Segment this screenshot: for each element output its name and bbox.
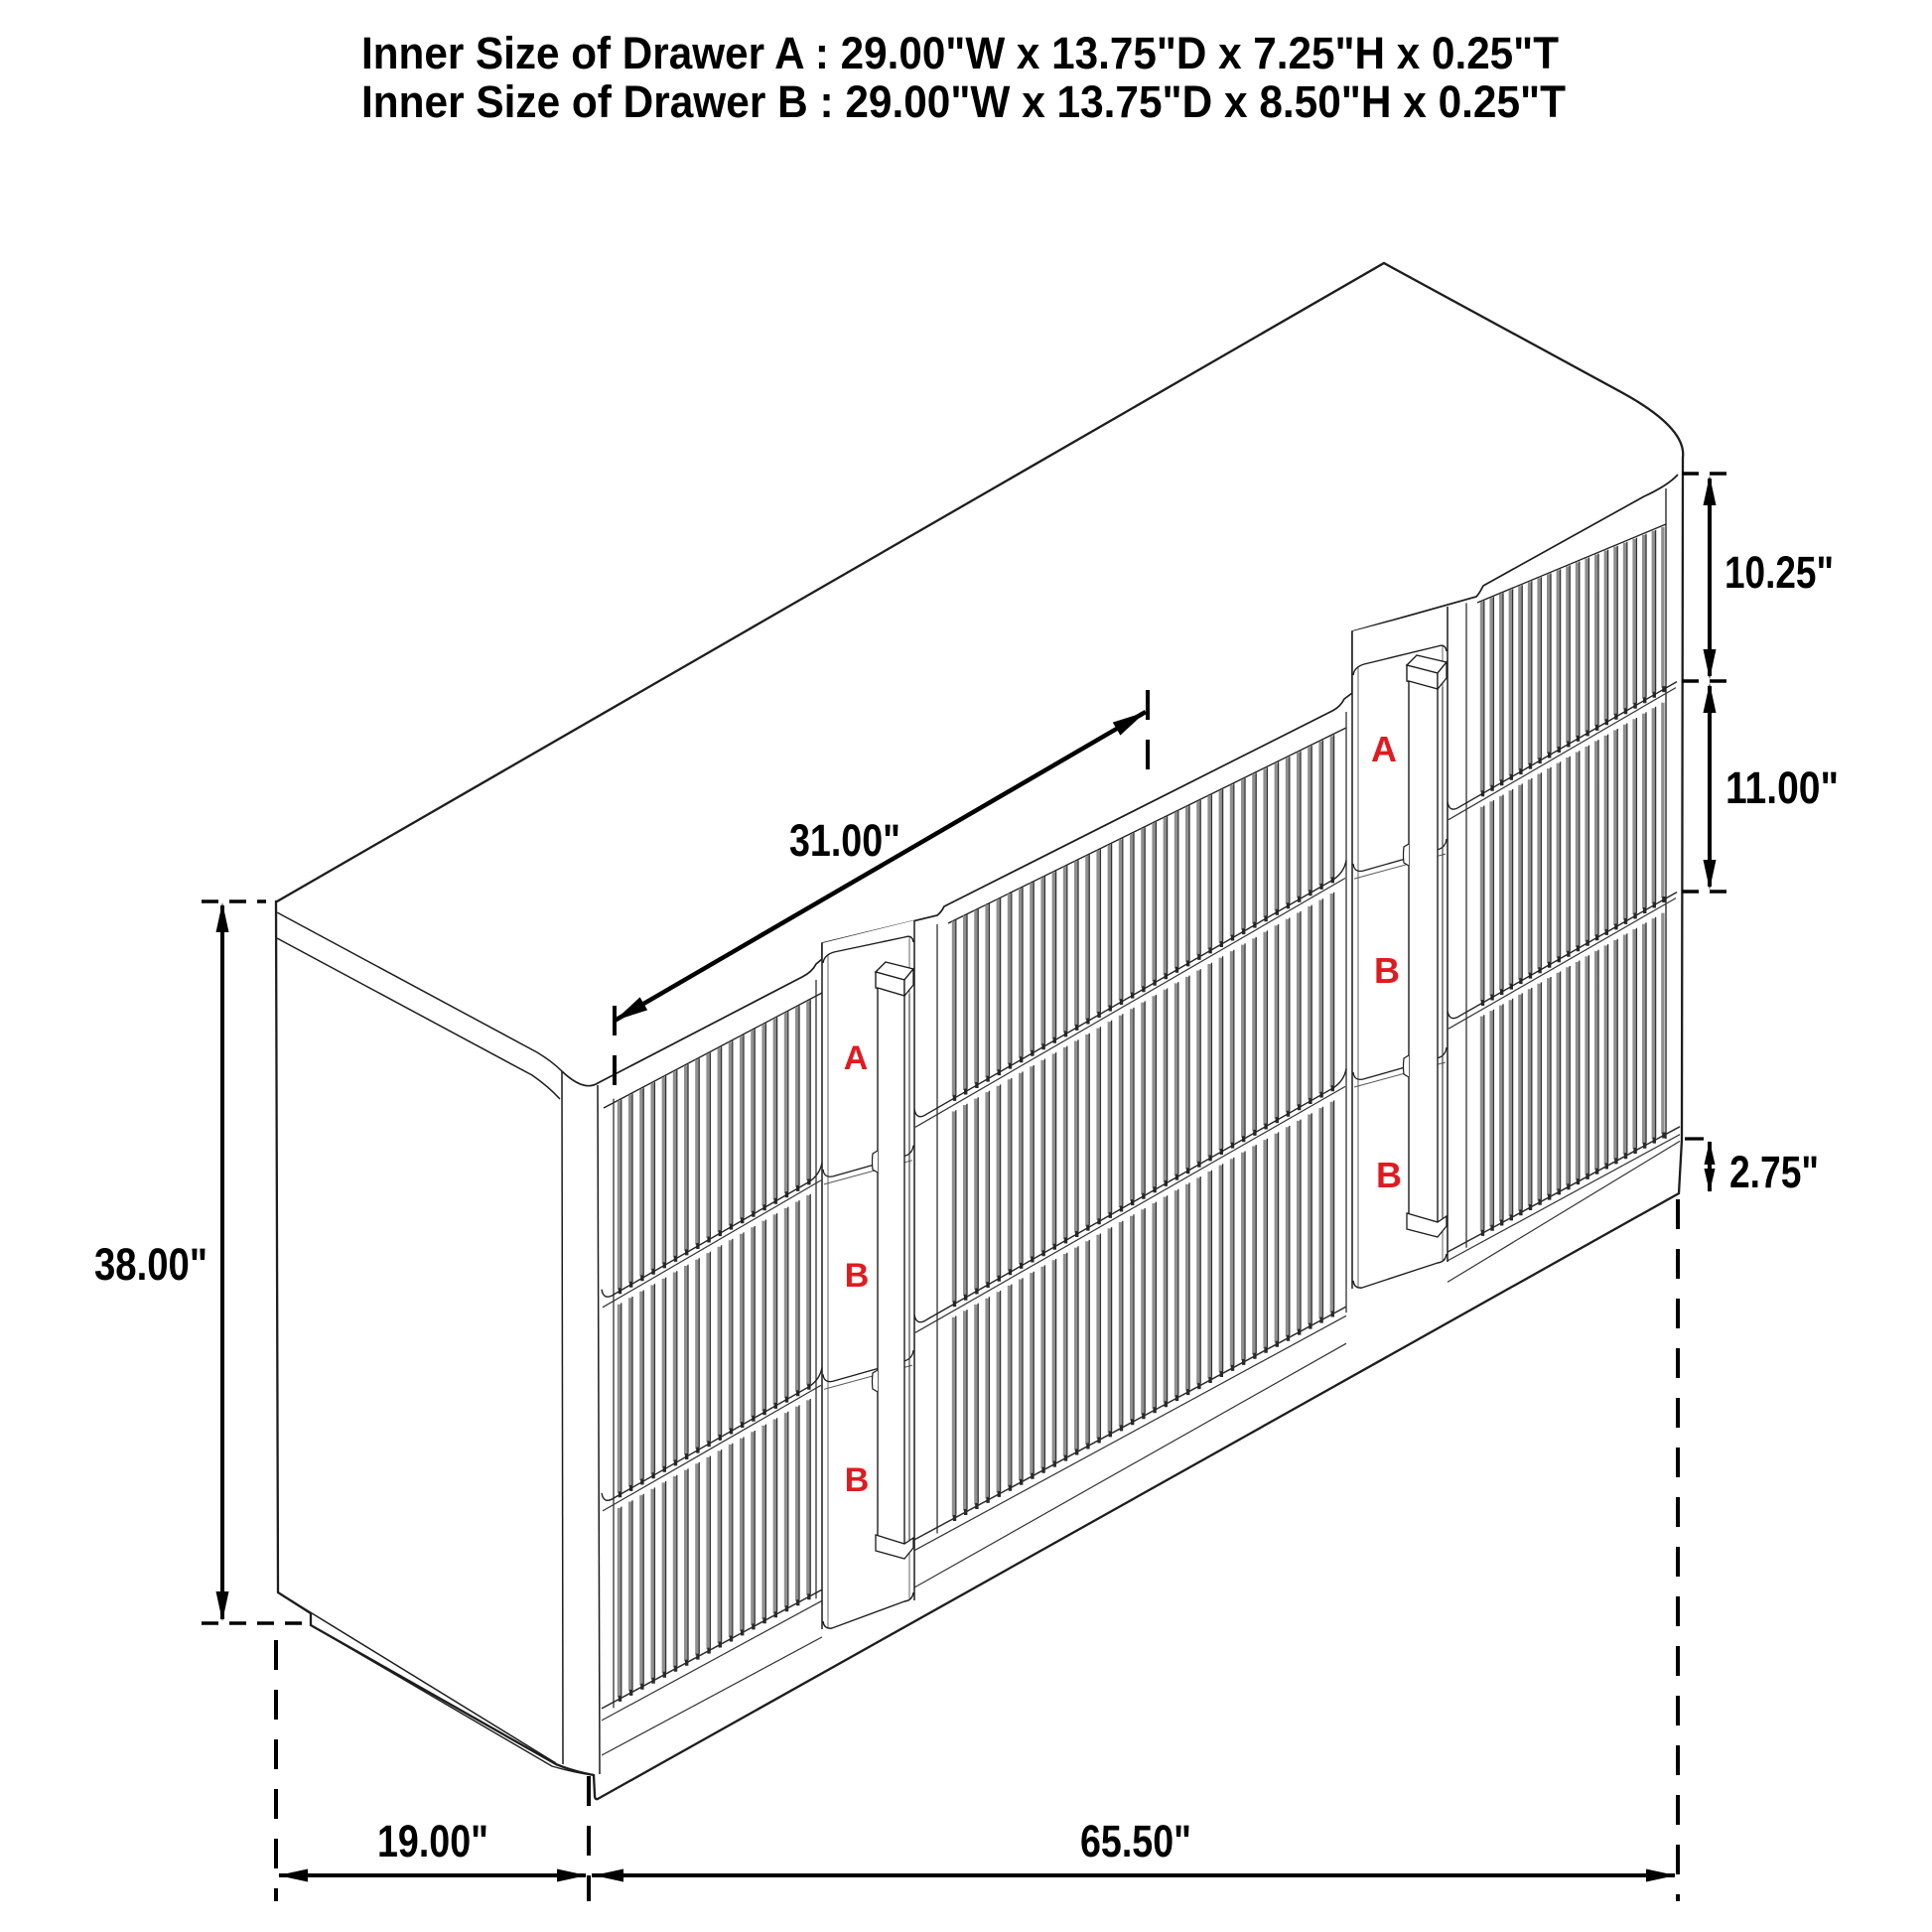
svg-text:11.00": 11.00" bbox=[1725, 762, 1839, 813]
svg-text:B: B bbox=[1374, 950, 1400, 991]
svg-text:Inner Size of Drawer B : 29.00: Inner Size of Drawer B : 29.00"W x 13.75… bbox=[361, 76, 1566, 127]
svg-text:A: A bbox=[844, 1039, 869, 1077]
svg-text:31.00": 31.00" bbox=[789, 815, 900, 866]
svg-text:2.75": 2.75" bbox=[1729, 1147, 1819, 1197]
svg-text:38.00": 38.00" bbox=[94, 1239, 207, 1290]
svg-text:B: B bbox=[1376, 1155, 1402, 1195]
svg-text:B: B bbox=[845, 1257, 870, 1295]
svg-text:Inner Size of Drawer A : 29.00: Inner Size of Drawer A : 29.00"W x 13.75… bbox=[361, 28, 1559, 78]
svg-text:19.00": 19.00" bbox=[377, 1816, 488, 1866]
svg-text:10.25": 10.25" bbox=[1725, 547, 1834, 598]
svg-text:A: A bbox=[1371, 729, 1397, 769]
svg-text:65.50": 65.50" bbox=[1080, 1816, 1191, 1866]
svg-text:B: B bbox=[845, 1461, 870, 1499]
